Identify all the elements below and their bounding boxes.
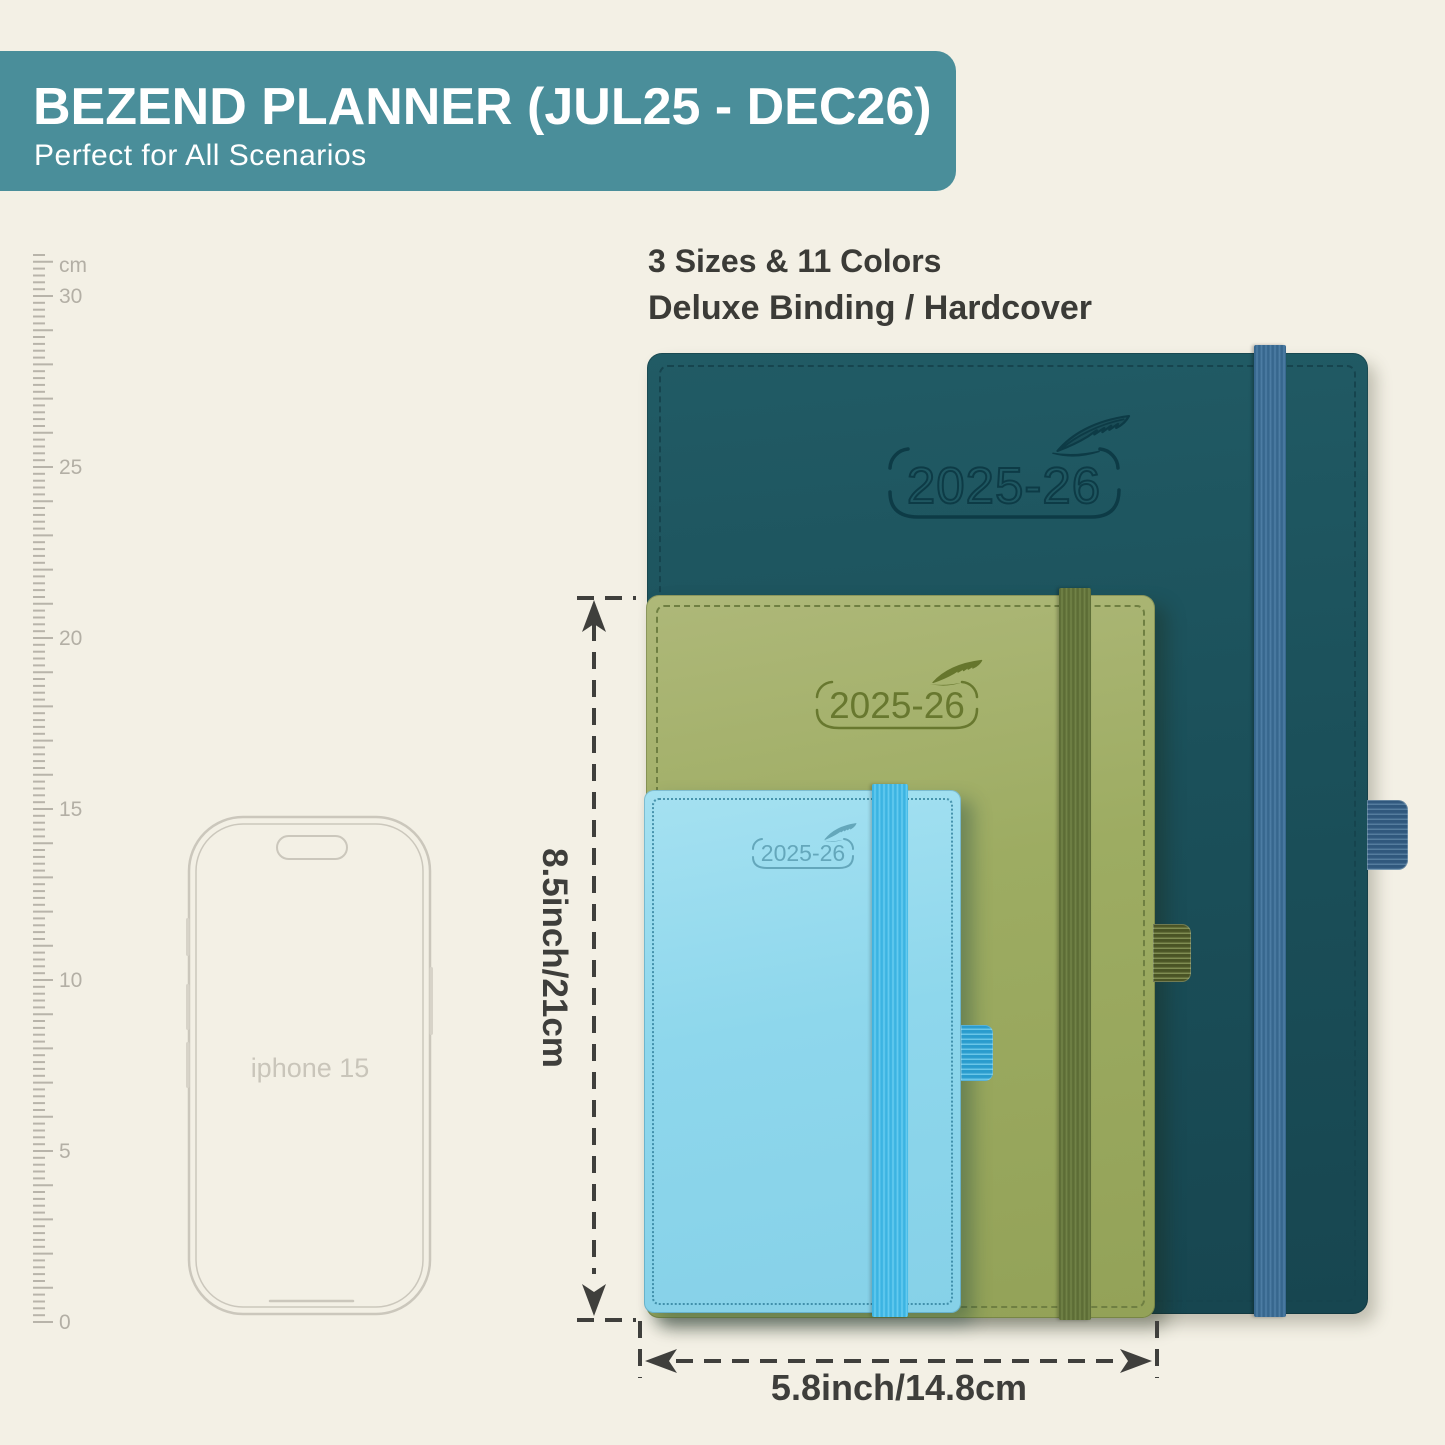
svg-text:30: 30 <box>59 285 82 308</box>
svg-text:iphone 15: iphone 15 <box>251 1053 370 1083</box>
svg-text:cm: cm <box>59 254 87 277</box>
svg-text:2025-26: 2025-26 <box>829 685 965 726</box>
svg-text:5: 5 <box>59 1140 71 1163</box>
svg-text:10: 10 <box>59 969 82 992</box>
svg-text:2025-26: 2025-26 <box>907 457 1101 514</box>
svg-text:25: 25 <box>59 456 82 479</box>
svg-text:15: 15 <box>59 798 82 821</box>
svg-text:20: 20 <box>59 627 82 650</box>
svg-text:2025-26: 2025-26 <box>761 840 845 866</box>
svg-text:0: 0 <box>59 1311 71 1334</box>
